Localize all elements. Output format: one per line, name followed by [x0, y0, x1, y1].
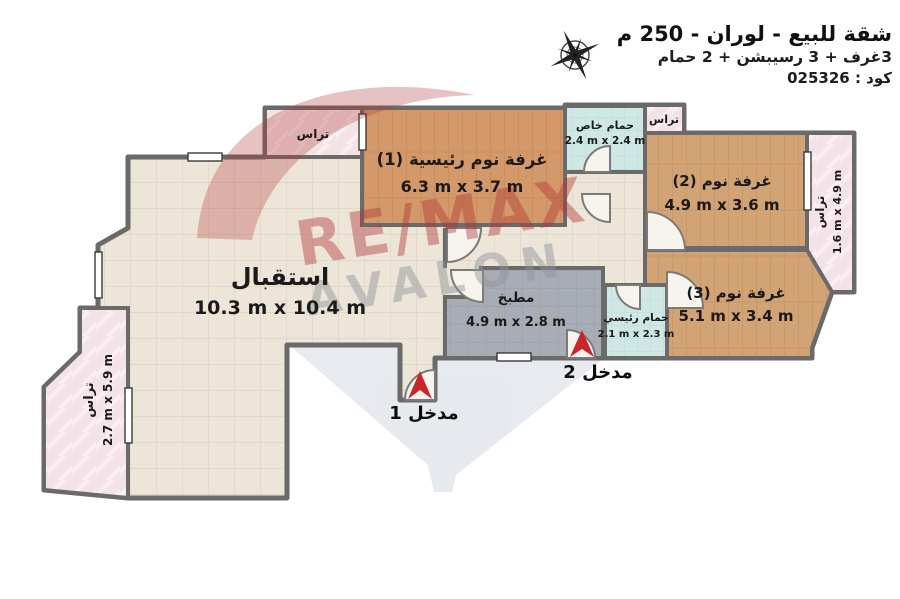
window-reception-left	[95, 252, 102, 298]
terrace-left-label: تراس	[82, 382, 97, 417]
private-bathroom-dims: 2.4 m x 2.4 m	[565, 135, 646, 147]
terrace-right-label: تراس	[813, 196, 827, 229]
terrace-top-label: تراس	[297, 127, 330, 141]
bedroom3-dims: 5.1 m x 3.4 m	[679, 307, 794, 325]
page-title: شقة للبيع - لوران - 250 م	[472, 22, 892, 46]
floorplan-page: RE/MAX AVALON استقبال 10.3 m x 10.4 m غر…	[0, 0, 900, 599]
private-bathroom-label: حمام خاص	[576, 119, 634, 132]
master-bedroom-dims: 6.3 m x 3.7 m	[401, 177, 524, 196]
reception-label: استقبال	[231, 263, 330, 291]
reception-dims: 10.3 m x 10.4 m	[194, 297, 366, 319]
window-bedroom2-right	[804, 152, 811, 210]
bedroom2-label: غرفة نوم (2)	[672, 172, 771, 190]
terrace-left-dims: 2.7 m x 5.9 m	[101, 354, 115, 446]
window-terrace-left	[125, 388, 132, 443]
entrance1-label: مدخل 1	[389, 403, 458, 424]
master-bedroom-label: غرفة نوم رئيسية (1)	[377, 150, 548, 170]
terrace-top-right-label: تراس	[649, 113, 679, 126]
kitchen-label: مطبخ	[498, 290, 535, 306]
floorplan-canvas: RE/MAX AVALON استقبال 10.3 m x 10.4 m غر…	[0, 0, 900, 599]
kitchen-dims: 4.9 m x 2.8 m	[466, 315, 566, 330]
bedroom2-dims: 4.9 m x 3.6 m	[665, 196, 780, 214]
entrance2-label: مدخل 2	[563, 362, 632, 383]
listing-code: كود : 025326	[472, 69, 892, 87]
terrace-right-dims: 1.6 m x 4.9 m	[831, 170, 844, 254]
window-reception-top	[188, 153, 222, 161]
window-kitchen-bottom	[497, 353, 531, 361]
bedroom3-label: غرفة نوم (3)	[686, 284, 785, 302]
header: شقة للبيع - لوران - 250 م 3غرف + 3 رسيبش…	[472, 22, 892, 87]
main-bathroom-dims: 2.1 m x 2.3 m	[598, 329, 675, 340]
page-subtitle: 3غرف + 3 رسيبشن + 2 حمام	[472, 48, 892, 66]
main-bathroom-label: حمام رئيسي	[603, 312, 668, 324]
